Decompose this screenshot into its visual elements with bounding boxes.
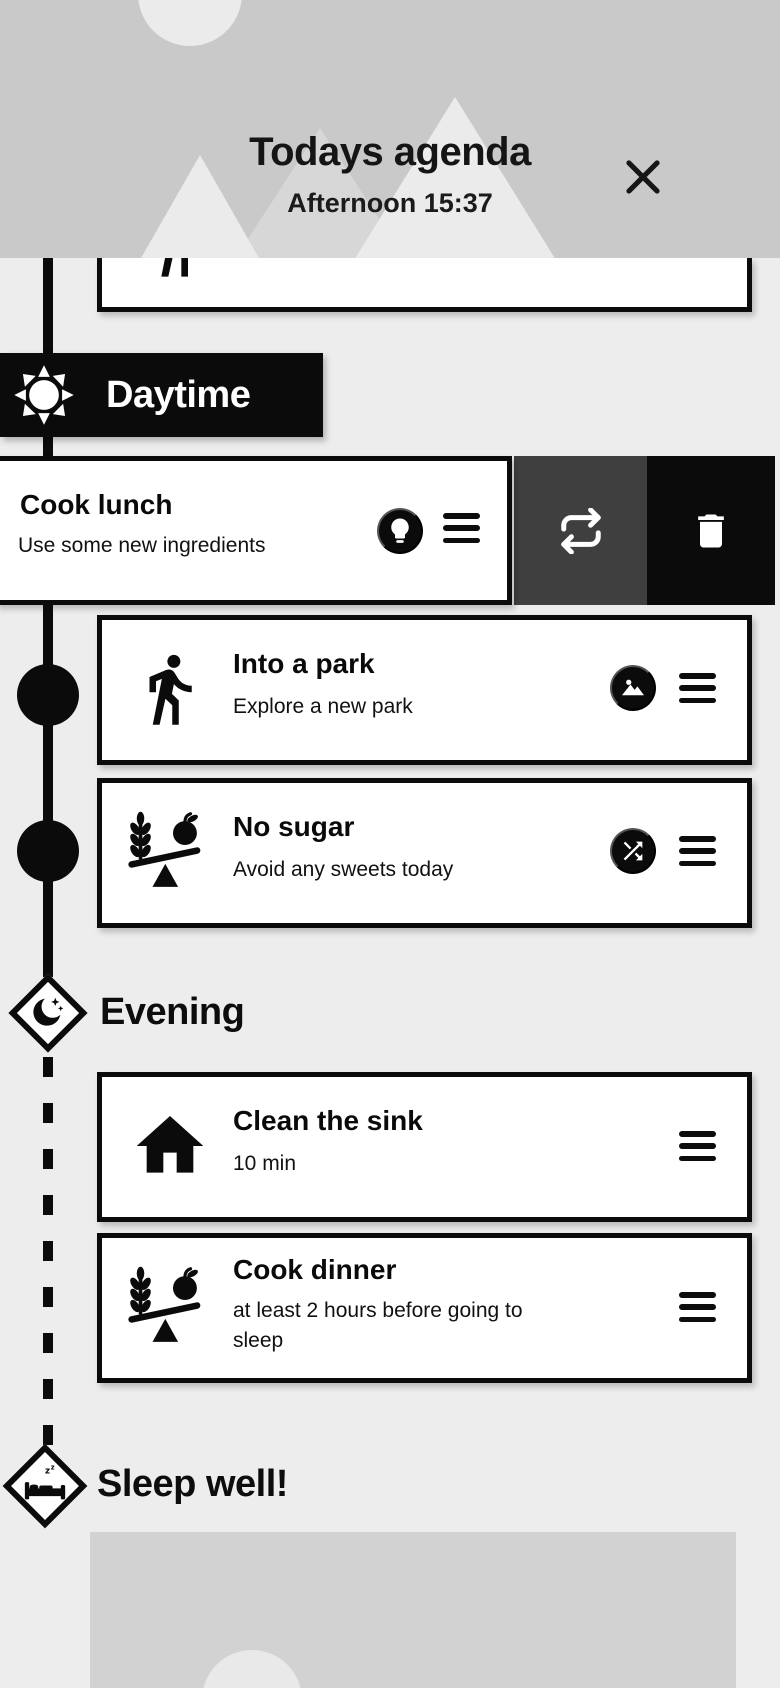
task-subtitle: at least 2 hours before going to sleep: [233, 1296, 543, 1356]
task-card-cook-lunch[interactable]: Cook lunch Use some new ingredients: [0, 456, 512, 605]
task-subtitle: Use some new ingredients: [18, 531, 265, 561]
swap-action-button[interactable]: [514, 456, 647, 605]
task-card-into-park[interactable]: Into a park Explore a new park: [97, 615, 752, 765]
drag-handle[interactable]: [679, 836, 716, 866]
park-icon: [618, 673, 648, 703]
task-subtitle: Explore a new park: [233, 692, 413, 722]
timeline-line-dashed: [43, 1057, 53, 1445]
task-card-no-sugar[interactable]: No sugar Avoid any sweets today: [97, 778, 752, 928]
timeline-node: [17, 820, 79, 882]
drag-handle[interactable]: [443, 513, 480, 543]
drag-handle[interactable]: [679, 673, 716, 703]
moon-icon: [29, 994, 67, 1032]
close-icon: [620, 154, 666, 200]
section-sleep-label: Sleep well!: [97, 1463, 288, 1506]
next-card-preview[interactable]: [90, 1532, 736, 1688]
timeline-node: [17, 664, 79, 726]
task-card-cook-dinner[interactable]: Cook dinner at least 2 hours before goin…: [97, 1233, 752, 1383]
task-title: Clean the sink: [233, 1105, 423, 1137]
delete-action-button[interactable]: [647, 456, 775, 605]
shuffle-badge[interactable]: [610, 828, 656, 874]
agenda-screen: Todays agenda Afternoon 15:37 Daytime Co…: [0, 0, 780, 1688]
task-card-partial[interactable]: [97, 258, 752, 312]
walk-icon: [138, 258, 218, 280]
header: Todays agenda Afternoon 15:37: [0, 0, 780, 258]
section-evening-label: Evening: [100, 991, 244, 1034]
shuffle-icon: [619, 837, 647, 865]
close-button[interactable]: [620, 154, 666, 200]
park-badge[interactable]: [610, 665, 656, 711]
drag-handle[interactable]: [679, 1131, 716, 1161]
walk-icon: [130, 650, 208, 728]
trash-icon: [689, 509, 733, 553]
task-subtitle: Avoid any sweets today: [233, 855, 453, 885]
scale-icon: [126, 810, 208, 892]
task-title: Cook lunch: [20, 489, 172, 521]
section-daytime: Daytime: [0, 353, 323, 437]
section-daytime-label: Daytime: [106, 374, 250, 417]
task-title: No sugar: [233, 811, 354, 843]
lightbulb-badge[interactable]: [377, 508, 423, 554]
scale-icon: [126, 1265, 208, 1347]
home-icon: [130, 1106, 210, 1186]
preview-decor-circle: [202, 1650, 302, 1688]
lightbulb-icon: [385, 516, 415, 546]
bed-icon: [22, 1463, 68, 1509]
task-card-clean-sink[interactable]: Clean the sink 10 min: [97, 1072, 752, 1222]
task-title: Cook dinner: [233, 1254, 396, 1286]
sun-icon: [13, 364, 75, 426]
drag-handle[interactable]: [679, 1292, 716, 1322]
swap-icon: [558, 508, 604, 554]
task-title: Into a park: [233, 648, 375, 680]
sun-decor-circle: [138, 0, 242, 46]
task-subtitle: 10 min: [233, 1149, 296, 1179]
